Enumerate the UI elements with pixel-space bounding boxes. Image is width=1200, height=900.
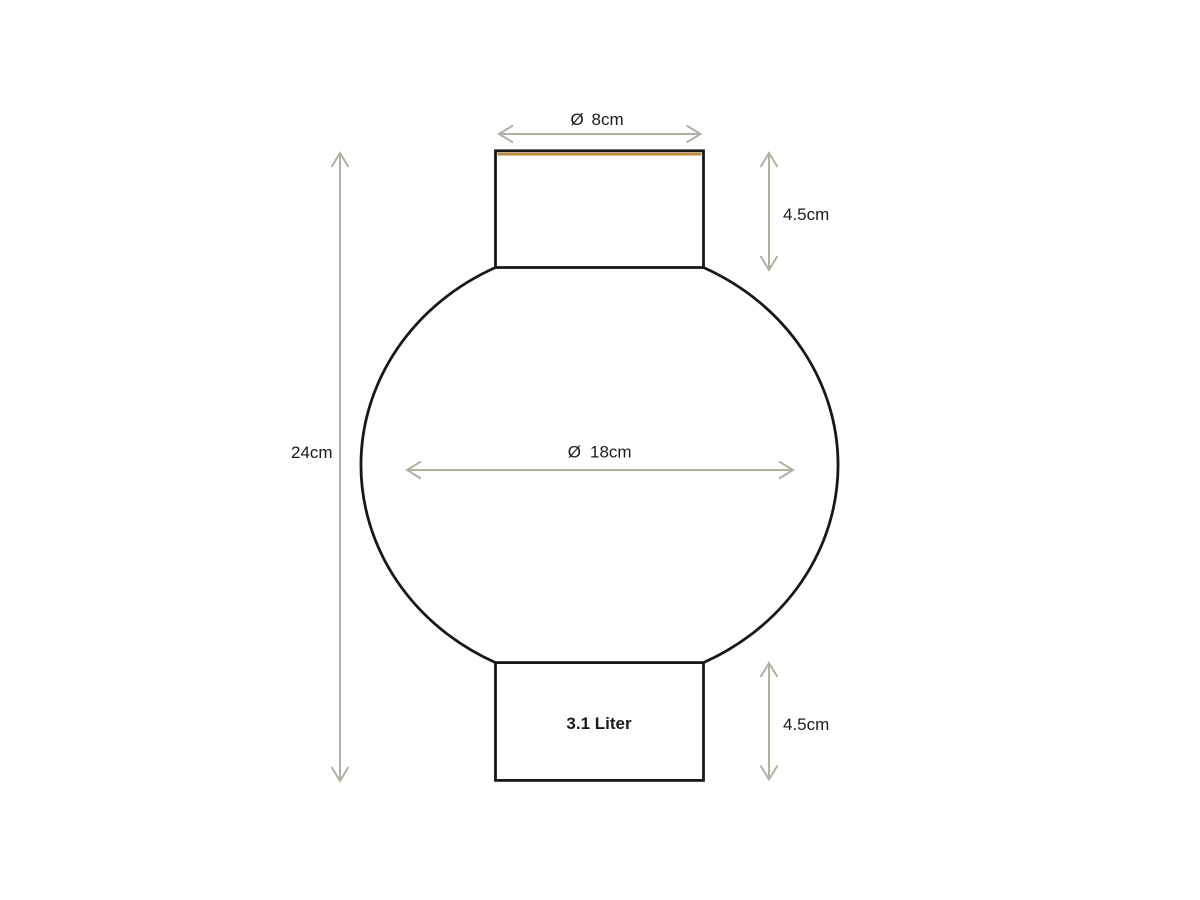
svg-text:8cm: 8cm bbox=[592, 110, 624, 129]
svg-text:Ø: Ø bbox=[571, 110, 584, 129]
svg-text:24cm: 24cm bbox=[291, 443, 333, 462]
svg-text:4.5cm: 4.5cm bbox=[783, 205, 829, 224]
svg-text:Ø: Ø bbox=[568, 442, 581, 461]
svg-text:3.1 Liter: 3.1 Liter bbox=[566, 714, 632, 733]
svg-text:4.5cm: 4.5cm bbox=[783, 715, 829, 734]
svg-text:18cm: 18cm bbox=[590, 442, 632, 461]
